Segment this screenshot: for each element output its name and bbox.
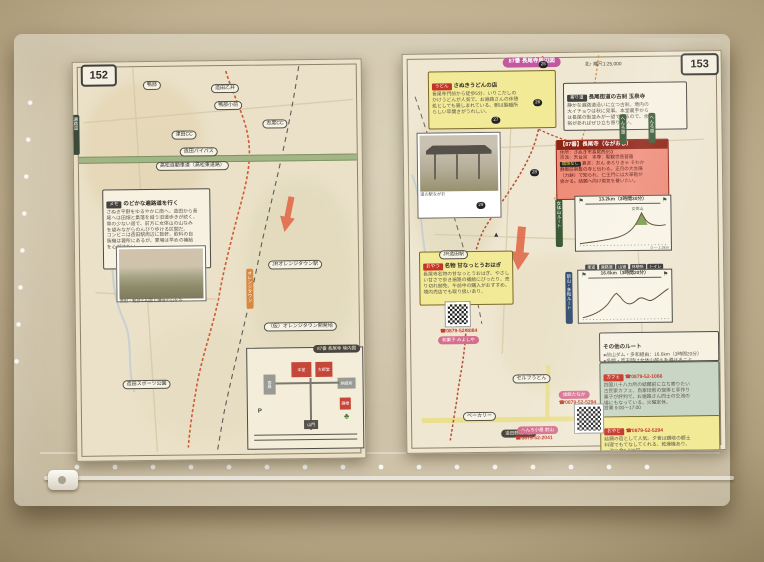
snack-line: 境内売店でも取り扱いあり。 xyxy=(423,289,509,296)
mountain-icon: ▲ xyxy=(493,232,500,239)
precinct-path-h xyxy=(276,382,340,384)
expressway-label: 高松自動車道（高松東道路） xyxy=(156,161,229,171)
lodging-phone: ☎0879-52-5294 xyxy=(626,428,663,434)
canopy-legs xyxy=(434,154,484,180)
udon-title: さぬきうどんの店 xyxy=(453,83,497,90)
map-label: 造田乙井 xyxy=(211,84,239,93)
goal-flag-icon: ⚑ xyxy=(662,197,667,203)
scenery-photo-caption: 造田・鴨部の田園と讃岐の山なみ xyxy=(120,298,183,304)
chart1-distance: 13.2km（3時間30分） xyxy=(586,197,660,205)
snack-box: おやつ名物 甘なっとうおはぎ 長尾寺名物の甘なっとうおはぎ。やさし い甘さで歩き… xyxy=(419,251,514,306)
map-label: 造田バイパス xyxy=(180,147,218,156)
route-marker: 29 xyxy=(476,202,485,209)
chart2-side-label: 前山・多和ルート xyxy=(565,272,572,324)
map-label: ベーカリー xyxy=(463,412,496,421)
memo-title: のどかな遍路道を行く xyxy=(123,201,178,208)
area-header-badge: 87番 長尾寺周辺図 xyxy=(503,57,561,67)
inn-badge: 旅館たなか xyxy=(559,391,590,399)
zipper-slider-hole xyxy=(58,476,66,484)
henro-trail-pill: へんろ道 xyxy=(619,114,626,144)
guidebook-spread: 152 遍路道 鴨部 造田乙井 鴨部小前 津田CC 志度CC 造田バイパス 高松… xyxy=(56,44,733,464)
route-marker: 28 xyxy=(530,169,539,176)
parking-label: P xyxy=(258,409,262,415)
roadside-station-photo: 道の駅ながお xyxy=(417,132,502,219)
map-label: 鴨部 xyxy=(143,81,161,90)
elevation-profile-2 xyxy=(578,281,671,322)
elevation-profile-1 xyxy=(575,207,671,250)
goal-flag-icon: ⚑ xyxy=(663,271,668,277)
hut-badge: へんろ小屋 前山 xyxy=(517,426,558,434)
temple-info-box: 【87番】長尾寺（ながおじ） 住所：さぬき市長尾西653 宗派：天台宗 本尊：聖… xyxy=(556,139,670,200)
map-label: JRオレンジタウン駅 xyxy=(268,260,322,270)
page-153: 153 87番 長尾寺周辺図 北↑ 縮尺1:25,000 うどんさぬきうどんの店… xyxy=(402,50,727,454)
lodging-box: おやど☎0879-52-5294 結願の宿として人気。夕食は讃岐の郷土 料理でも… xyxy=(600,415,720,452)
qr-code xyxy=(446,302,470,326)
guest-hall-box: 客殿 xyxy=(263,374,275,394)
daishi-hall-box: 大師堂 xyxy=(315,362,332,377)
cafe-chip: カフェ xyxy=(603,374,623,381)
cafe-box: カフェ☎0879-52-1066 四国八十八カ所の結願前に立ち寄りたい 古民家カ… xyxy=(599,361,720,418)
route-marker: 27 xyxy=(491,117,500,124)
map-label: セルフうどん xyxy=(512,374,550,383)
map-label: （仮）オレンジタウン開発地 xyxy=(264,322,337,332)
page-number-tab: 152 xyxy=(81,64,117,86)
tree-icon: ♣ xyxy=(344,412,349,421)
map-label: 志度CC xyxy=(262,119,287,128)
area-header-note: 北↑ 縮尺1:25,000 xyxy=(585,60,622,67)
snack-title: 名物 甘なっとうおはぎ xyxy=(445,263,502,270)
henro-trail-pill: へんろ道 xyxy=(648,113,655,143)
zipper-track xyxy=(44,476,734,480)
udon-chip: うどん xyxy=(432,83,452,90)
hut-phone: ☎0879-52-2041 xyxy=(515,435,552,441)
chart1-scale: 0 ― 1.0km xyxy=(651,246,669,250)
memo-chip: メモ xyxy=(106,201,121,208)
bell-tower-box: 鐘楼 xyxy=(340,398,351,410)
detour-chip: 寄り道 xyxy=(567,95,587,102)
map-label: 造田スポーツ公園 xyxy=(123,380,171,390)
page-number-tab: 153 xyxy=(681,53,719,75)
page-number: 152 xyxy=(90,69,109,81)
temple-note: 掛かる。結願へ向け英気を養いたい。 xyxy=(557,178,668,185)
qr-code xyxy=(575,404,603,432)
snack-chip: おやつ xyxy=(423,263,443,270)
other-routes-box: その他のルート ●前山ダム・多和経由：16.6km（3時間20分） ●冬期・荒天… xyxy=(599,331,719,362)
route-marker: 26 xyxy=(533,99,542,106)
chart1-peak-label: 女体山 xyxy=(631,206,643,212)
lodging-chip: おやど xyxy=(604,428,624,435)
route-marker: 25 xyxy=(539,61,548,68)
other-routes-title: その他のルート xyxy=(603,344,642,350)
detour-title: 長尾街道の古刹 玉泉寺 xyxy=(589,94,646,101)
gate-box: 山門 xyxy=(304,420,318,429)
precinct-tab: 87番 長尾寺 境内図 xyxy=(313,344,360,352)
lodging-line: 一泊二食6,500円。 xyxy=(604,448,716,454)
scenery-photo-image xyxy=(119,248,204,299)
cafe-phone: ☎0879-52-1066 xyxy=(625,374,662,380)
map-label: 津田CC xyxy=(171,130,196,139)
page-number: 153 xyxy=(690,58,709,70)
map-label: JR造田駅 xyxy=(439,250,468,259)
zipper-slider xyxy=(48,470,78,490)
stamp-office-box: 納経所 xyxy=(338,377,356,388)
precinct-road xyxy=(254,433,357,440)
roadside-station-caption: 道の駅ながお xyxy=(420,191,498,197)
snack-phone: ☎0879-52-3084 xyxy=(440,328,477,334)
udon-line: らしい早開きがうれしい。 xyxy=(432,109,552,116)
start-flag-icon: ⚑ xyxy=(578,198,583,204)
elevation-chart-1: ⚑ 13.2km（3時間30分） ⚑ 女体山 0 ― 1.0km xyxy=(574,195,672,252)
orangetown-vertical-label: オレンジタウン xyxy=(246,269,253,309)
chart1-side-label: 女体山ルート xyxy=(555,199,562,247)
edge-route-tab: 遍路道 xyxy=(72,115,79,155)
scenery-photo xyxy=(116,245,207,302)
precinct-diagram: 87番 長尾寺 境内図 本堂 大師堂 客殿 納経所 鐘楼 P 山門 ♣ xyxy=(246,346,364,449)
elevation-chart-2: ⚑ 16.6km（3時間20分） ⚑ xyxy=(577,269,673,324)
page-152: 152 遍路道 鴨部 造田乙井 鴨部小前 津田CC 志度CC 造田バイパス 高松… xyxy=(72,58,367,462)
photo-scene: 152 遍路道 鴨部 造田乙井 鴨部小前 津田CC 志度CC 造田バイパス 高松… xyxy=(0,0,764,562)
start-flag-icon: ⚑ xyxy=(581,272,586,278)
snack-shop-badge: 和菓子 みよしや xyxy=(438,336,479,344)
chart2-distance: 16.6km（3時間20分） xyxy=(589,271,661,279)
map-label: 鴨部小前 xyxy=(214,101,242,110)
roadside-station-photo-image xyxy=(420,135,499,192)
main-hall-box: 本堂 xyxy=(291,362,311,377)
cafe-line: 営業 9:00〜17:00 xyxy=(604,405,716,412)
